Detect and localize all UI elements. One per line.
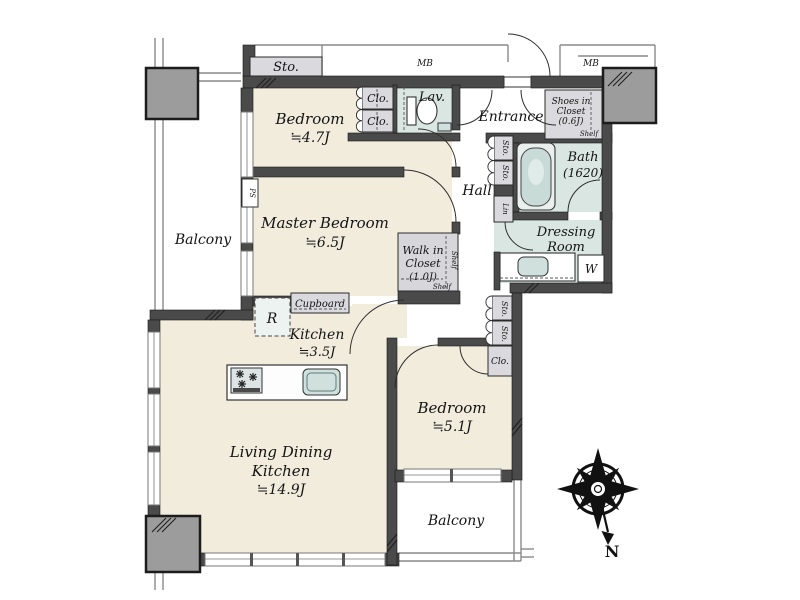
svg-text:Shelf: Shelf [580, 130, 600, 138]
svg-text:Room: Room [546, 240, 585, 255]
svg-text:Master Bedroom: Master Bedroom [260, 214, 389, 232]
storage-hall-upper-folding-door [488, 136, 494, 185]
svg-text:Bath: Bath [567, 150, 599, 165]
svg-text:≒5.1J: ≒5.1J [432, 419, 473, 435]
meter-box-right-label: MB [582, 59, 599, 69]
linen-label: Lin [501, 202, 509, 215]
meter-box-left-label: MB [416, 59, 433, 69]
entrance-label: Entrance [477, 109, 543, 125]
svg-text:≒4.7J: ≒4.7J [290, 130, 331, 146]
pipe-space-label: PS [248, 187, 256, 198]
refrigerator-label: R [266, 311, 278, 327]
bathtub-icon [517, 143, 555, 210]
storage-hall-lower-1-label: Sto. [500, 301, 509, 317]
floor-plan-canvas: Sto. MB MB Clo. Clo. Lav. Entrance Shoes… [0, 0, 800, 600]
storage-corridor-label: Sto. [273, 60, 299, 75]
floor-plan-page: Sto. MB MB Clo. Clo. Lav. Entrance Shoes… [0, 0, 800, 600]
closet-upper-2-label: Clo. [367, 115, 389, 128]
pillar-bottom-left [146, 516, 200, 572]
svg-text:Closet: Closet [557, 107, 586, 117]
entrance-door-panel [504, 77, 531, 87]
hall-label: Hall [461, 183, 492, 199]
svg-text:Bedroom: Bedroom [417, 399, 487, 417]
lavatory-label: Lav. [418, 90, 445, 105]
svg-text:Kitchen: Kitchen [251, 462, 311, 480]
svg-text:(1620): (1620) [563, 166, 603, 180]
svg-text:Shelf: Shelf [450, 251, 458, 271]
ldk-bottom-windows [205, 553, 385, 566]
svg-text:Shelf: Shelf [433, 283, 453, 291]
pillar-top-left [146, 68, 198, 119]
entrance-door-outer-swing [508, 34, 550, 76]
compass-rose-icon: N [556, 447, 641, 561]
svg-text:Walk in: Walk in [402, 244, 443, 257]
kitchen-island [227, 365, 347, 400]
svg-text:≒14.9J: ≒14.9J [257, 482, 307, 498]
svg-text:Shoes in: Shoes in [552, 97, 591, 107]
bedroom-right-window [404, 469, 501, 482]
svg-text:(0.6J): (0.6J) [559, 116, 584, 127]
balcony-left-label: Balcony [174, 232, 232, 248]
svg-text:Closet: Closet [405, 257, 441, 270]
closet-bedroom-right-label: Clo. [491, 357, 509, 367]
washbasin-icon [518, 257, 548, 276]
ldk-left-windows [148, 332, 160, 505]
svg-text:(1.0J): (1.0J) [409, 272, 437, 283]
washbasin-counter [500, 253, 575, 281]
sink-icon [303, 369, 340, 395]
storage-hall-lower-2-label: Sto. [500, 326, 509, 342]
pillar-top-right [603, 68, 656, 123]
master-bedroom-windows [241, 207, 253, 296]
storage-hall-lower-folding-door [486, 296, 492, 345]
svg-text:Living Dining: Living Dining [229, 443, 333, 461]
closet-upper-1-label: Clo. [367, 92, 389, 105]
stove-icon [231, 368, 262, 393]
cupboard-label: Cupboard [295, 299, 345, 310]
bedroom-top-window [241, 112, 253, 177]
svg-text:Kitchen: Kitchen [289, 327, 345, 343]
washing-machine-label: W [585, 262, 599, 276]
north-label: N [605, 542, 620, 561]
svg-text:≒3.5J: ≒3.5J [299, 345, 337, 360]
storage-hall-upper-2-label: Sto. [501, 165, 510, 181]
svg-text:≒6.5J: ≒6.5J [305, 235, 346, 251]
storage-hall-upper-1-label: Sto. [501, 140, 510, 156]
svg-text:Dressing: Dressing [536, 225, 596, 240]
balcony-bottom-label: Balcony [427, 513, 485, 529]
svg-text:Bedroom: Bedroom [275, 110, 345, 128]
